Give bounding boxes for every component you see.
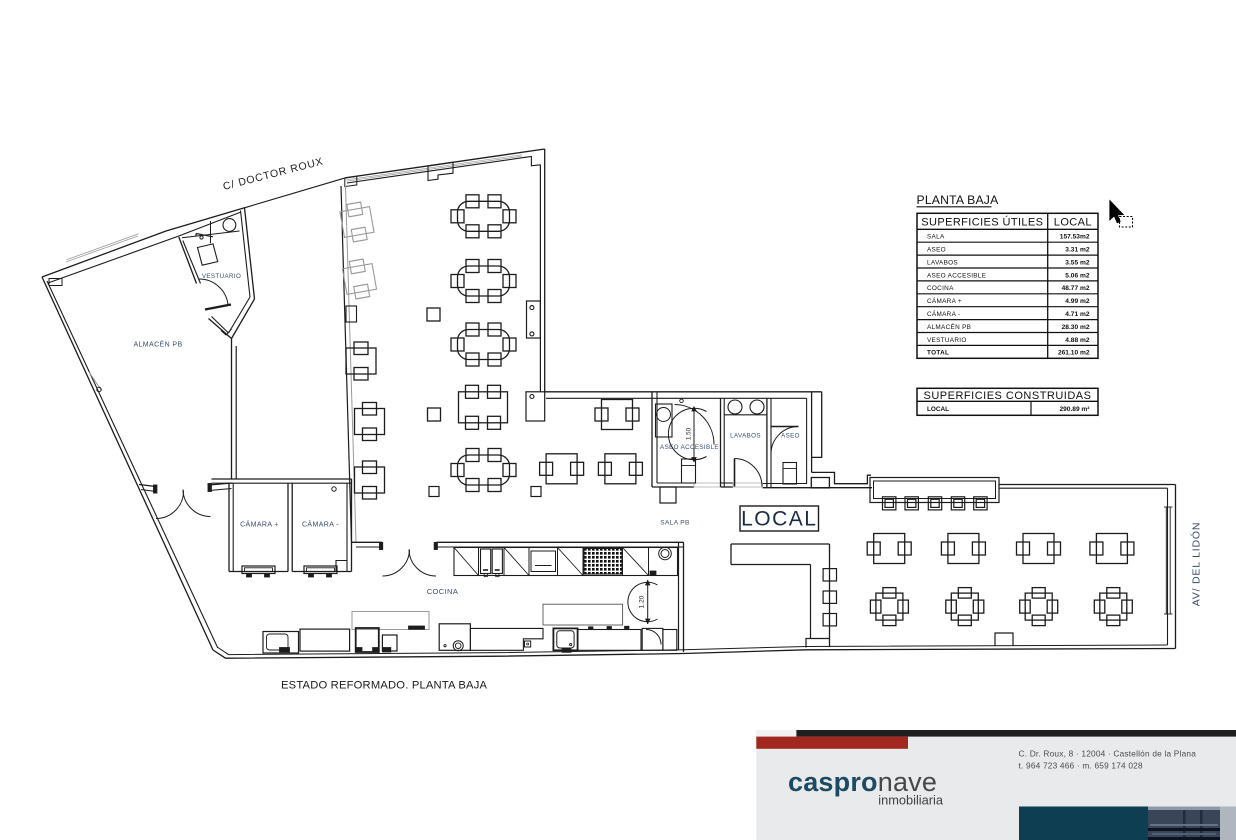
svg-text:VESTUARIO: VESTUARIO xyxy=(202,273,241,280)
svg-text:28.30 m2: 28.30 m2 xyxy=(1062,324,1090,331)
svg-text:261.10 m2: 261.10 m2 xyxy=(1058,350,1090,357)
svg-text:ALMACÉN PB: ALMACÉN PB xyxy=(133,340,182,349)
svg-text:SUPERFICIES ÚTILES: SUPERFICIES ÚTILES xyxy=(921,215,1043,228)
svg-text:CÁMARA -: CÁMARA - xyxy=(927,309,960,318)
svg-text:CÁMARA -: CÁMARA - xyxy=(302,520,339,529)
svg-text:ASEO ACCESIBLE: ASEO ACCESIBLE xyxy=(927,272,986,279)
svg-text:4.99 m2: 4.99 m2 xyxy=(1065,298,1090,305)
svg-text:SALA: SALA xyxy=(927,234,945,241)
svg-text:VESTUARIO: VESTUARIO xyxy=(927,337,967,344)
svg-text:COCINA: COCINA xyxy=(927,285,954,292)
svg-text:TOTAL: TOTAL xyxy=(927,350,949,357)
svg-text:LOCAL: LOCAL xyxy=(927,406,949,413)
svg-text:4.71 m2: 4.71 m2 xyxy=(1065,311,1090,318)
svg-text:3.55 m2: 3.55 m2 xyxy=(1065,259,1090,266)
svg-text:SUPERFICIES CONSTRUIDAS: SUPERFICIES CONSTRUIDAS xyxy=(924,390,1092,402)
svg-text:AV/ DEL LIDÓN: AV/ DEL LIDÓN xyxy=(1190,522,1203,607)
svg-text:ASEO ACCESIBLE: ASEO ACCESIBLE xyxy=(660,444,719,451)
svg-text:48.77 m2: 48.77 m2 xyxy=(1062,285,1090,292)
svg-text:LAVABOS: LAVABOS xyxy=(927,259,958,266)
svg-text:C. Dr. Roux, 8 · 12004 · Caste: C. Dr. Roux, 8 · 12004 · Castellón de la… xyxy=(1019,749,1197,759)
svg-text:COCINA: COCINA xyxy=(427,587,459,596)
svg-text:157.53m2: 157.53m2 xyxy=(1060,234,1090,241)
svg-text:1.20: 1.20 xyxy=(639,595,646,608)
svg-text:LOCAL: LOCAL xyxy=(741,508,817,531)
svg-text:LAVABOS: LAVABOS xyxy=(730,433,761,440)
svg-text:PLANTA BAJA: PLANTA BAJA xyxy=(917,193,1000,207)
svg-text:SALA PB: SALA PB xyxy=(660,520,690,527)
svg-text:inmobiliaria: inmobiliaria xyxy=(878,793,944,808)
svg-text:3.31 m2: 3.31 m2 xyxy=(1065,247,1090,254)
svg-text:ALMACÉN PB: ALMACÉN PB xyxy=(927,322,971,331)
svg-text:290.89 m²: 290.89 m² xyxy=(1059,406,1090,413)
svg-text:LOCAL: LOCAL xyxy=(1054,216,1092,228)
svg-text:5.06 m2: 5.06 m2 xyxy=(1065,272,1090,279)
svg-text:CÁMARA +: CÁMARA + xyxy=(927,296,962,305)
svg-text:CÁMARA +: CÁMARA + xyxy=(240,520,279,529)
svg-text:t. 964 723 466 · m. 659 174 02: t. 964 723 466 · m. 659 174 028 xyxy=(1019,761,1143,771)
svg-text:1.50: 1.50 xyxy=(685,427,692,440)
svg-text:ASEO: ASEO xyxy=(927,247,946,254)
svg-text:ESTADO REFORMADO. PLANTA BAJA: ESTADO REFORMADO. PLANTA BAJA xyxy=(281,680,488,692)
svg-text:ASEO: ASEO xyxy=(781,433,800,440)
svg-text:4.88 m2: 4.88 m2 xyxy=(1065,337,1090,344)
